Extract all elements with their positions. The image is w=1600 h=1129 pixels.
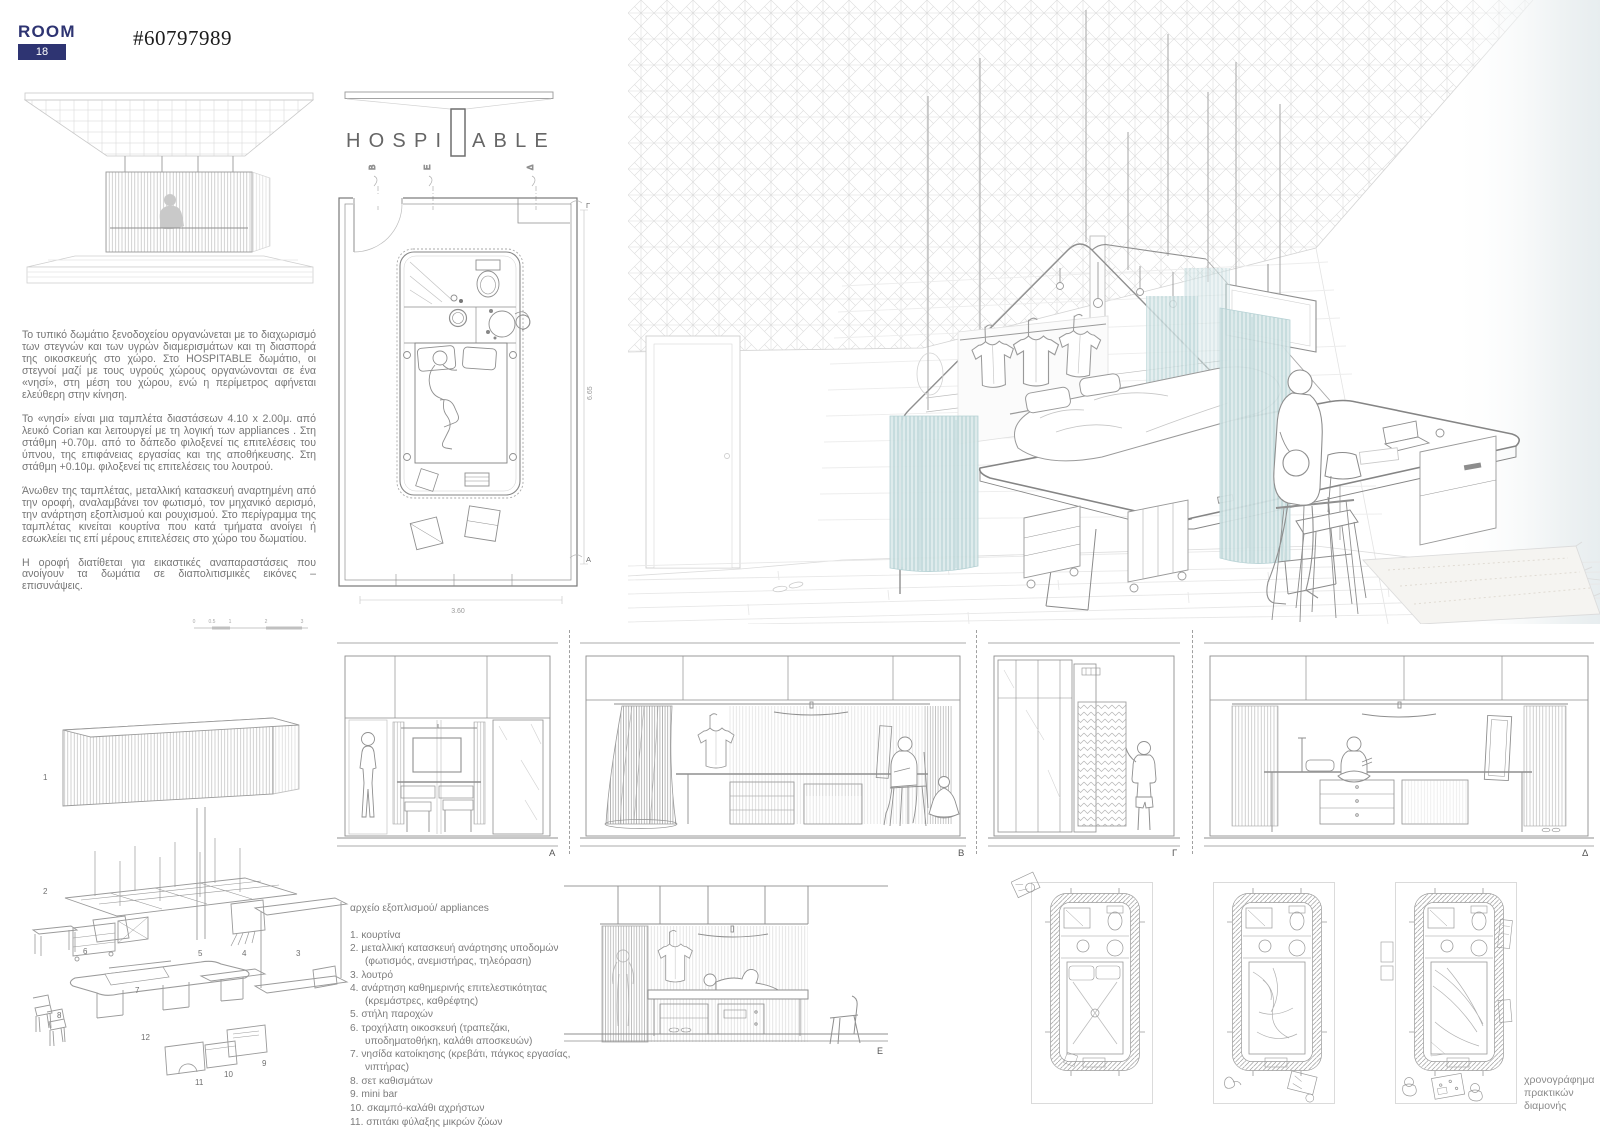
section-separator [569, 630, 570, 854]
intro-paragraph: Το «νησί» είναι μια ταμπλέτα διαστάσεων … [22, 414, 316, 474]
dimension-height: 6.65 [580, 210, 594, 564]
elevation-e: Ε [560, 878, 895, 1063]
part-stool [205, 1041, 237, 1068]
elevation-b [578, 640, 968, 852]
marker-alpha: Α [570, 555, 591, 564]
scale-tick: 2 [265, 619, 268, 625]
svg-text:Γ: Γ [586, 201, 590, 210]
section-marker-d: Δ [526, 164, 536, 210]
exploded-axonometric: 1 2 3 4 5 6 7 8 9 10 11 12 [15, 688, 350, 1108]
svg-text:3.60: 3.60 [451, 608, 465, 615]
curtain [1232, 706, 1278, 826]
part-number: 11 [195, 1078, 204, 1087]
chronogram-caption: χρονογράφημα πρακτικών διαμονής [1524, 1074, 1600, 1113]
floor-plan: Β Ε Δ [330, 146, 600, 626]
svg-text:Β: Β [368, 165, 377, 170]
part-number: 9 [262, 1059, 267, 1068]
intro-paragraph: Το τυπικό δωμάτιο ξενοδοχείου οργανώνετα… [22, 330, 316, 402]
caption-line: διαμονής [1524, 1100, 1600, 1113]
svg-text:6.65: 6.65 [587, 386, 594, 400]
glass-partition [998, 660, 1072, 832]
part-number: 7 [135, 986, 140, 995]
part-number: 12 [141, 1033, 150, 1042]
loose-cushions [410, 506, 500, 550]
part-column [197, 807, 205, 940]
appliances-heading: αρχείο εξοπλισμού/ appliances [350, 903, 578, 916]
main-perspective [628, 0, 1600, 624]
pillow [1306, 760, 1334, 771]
scenario-plan-1 [1011, 862, 1153, 1104]
room-badge: ROOM 18 [18, 22, 76, 60]
island [397, 249, 523, 498]
part-curtain [63, 718, 299, 806]
bed-slab [648, 990, 808, 999]
part-frame [65, 838, 297, 942]
part-bathroom [255, 898, 347, 993]
appliance-item: 4. ανάρτηση καθημερινής επιτελεστικότητα… [350, 983, 578, 1008]
appliance-item: 8. σετ καθισμάτων [350, 1076, 578, 1089]
part-island [70, 961, 265, 1018]
appliances-list: αρχείο εξοπλισμού/ appliances 1. κουρτίν… [350, 903, 578, 1129]
appliance-item: 1. κουρτίνα [350, 930, 578, 943]
elevation-label-gamma: Γ [1172, 848, 1177, 859]
part-number: 8 [57, 1011, 62, 1020]
standing-person [1126, 742, 1156, 831]
scenario-plan-3 [1375, 862, 1517, 1104]
poster: ROOM 18 #60797989 HOSPI ABLE [0, 0, 1600, 1129]
scale-tick: 1 [229, 619, 232, 625]
cat-outside [1225, 1077, 1241, 1088]
part-number: 1 [43, 773, 48, 782]
cat [1283, 450, 1309, 476]
intro-text: Το τυπικό δωμάτιο ξενοδοχείου οργανώνετα… [22, 330, 316, 605]
room-number: 18 [18, 44, 66, 60]
appliance-item: 5. στήλη παροχών [350, 1009, 578, 1022]
part-trolley [33, 917, 148, 961]
caption-line: πρακτικών [1524, 1087, 1600, 1100]
graphic-scale: 0 0.5 1 2 3 [190, 616, 325, 636]
appliance-item: 2. μεταλλική κατασκευή ανάρτησης υποδομώ… [350, 943, 578, 968]
dimension-width: 3.60 [360, 596, 562, 615]
ceiling-fan [1398, 702, 1401, 708]
hanging-rods [125, 156, 233, 172]
curtain [602, 926, 648, 1042]
elevation-a [335, 640, 560, 852]
part-number: 2 [43, 887, 48, 896]
sitting-person [1338, 737, 1372, 782]
curtain [1524, 706, 1566, 826]
appliance-item: 10. σκαμπό-καλάθι αχρήστων [350, 1103, 578, 1116]
headboard [1298, 738, 1306, 772]
shower-curtain [1078, 702, 1126, 826]
appliance-item: 6. τροχήλατη οικοσκευή (τραπεζάκι, υποδη… [350, 1023, 578, 1048]
elevation-label-delta: Δ [1582, 848, 1588, 859]
scale-tick: 0.5 [209, 619, 216, 625]
marker-gamma: Γ [570, 201, 590, 210]
elevation-label-b: Β [958, 848, 964, 859]
curtain [474, 722, 485, 824]
figures-outside [1403, 1073, 1483, 1101]
appliance-item: 3. λουτρό [350, 970, 578, 983]
appliance-item: 11. σπιτάκι φύλαξης μικρών ζώων [350, 1117, 578, 1129]
scale-tick: 3 [301, 619, 304, 625]
entry-id: #60797989 [133, 26, 232, 51]
svg-text:Ε: Ε [423, 165, 432, 170]
elevation-delta [1202, 640, 1596, 852]
part-hangers [231, 900, 265, 946]
standing-person [360, 733, 376, 818]
elevation-label-a: Α [549, 848, 555, 859]
mirror [1484, 715, 1511, 780]
desk-outside [1286, 1071, 1319, 1103]
ceiling-fan [401, 724, 477, 728]
curtain [393, 722, 404, 824]
room-door [646, 336, 740, 568]
part-number: 4 [242, 949, 247, 958]
overview-axonometric [18, 88, 318, 293]
elevation-label-e: Ε [877, 1046, 883, 1056]
section-separator [976, 630, 977, 854]
section-separator [1192, 630, 1193, 854]
section-marker-e: Ε [423, 165, 433, 210]
ceiling-pattern [628, 0, 1533, 352]
part-number: 10 [224, 1070, 233, 1079]
floor-slab [27, 256, 313, 283]
appliance-item: 9. mini bar [350, 1089, 578, 1102]
curtain-left [890, 416, 978, 572]
svg-text:Α: Α [586, 555, 591, 564]
intro-paragraph: Άνωθεν της ταμπλέτας, μεταλλική κατασκευ… [22, 486, 316, 546]
part-number: 3 [296, 949, 301, 958]
part-number: 6 [83, 947, 88, 956]
intro-paragraph: Η οροφή διατίθεται για εικαστικές αναπαρ… [22, 558, 316, 594]
part-number: 5 [198, 949, 203, 958]
outside-figure [1011, 872, 1040, 898]
caption-line: χρονογράφημα [1524, 1074, 1600, 1087]
rug [1363, 542, 1600, 624]
big-curtain [605, 706, 677, 829]
appliance-item: 7. νησίδα κατοίκησης (κρεβάτι, πάγκος ερ… [350, 1049, 578, 1074]
part-chairs [33, 995, 66, 1046]
elevation-gamma [986, 640, 1182, 852]
scenario-plan-2 [1193, 862, 1335, 1104]
part-pet-house [165, 1042, 205, 1075]
chair [830, 996, 860, 1044]
svg-text:Δ: Δ [526, 164, 535, 170]
scale-tick: 0 [193, 619, 196, 625]
room-label: ROOM [18, 22, 76, 42]
